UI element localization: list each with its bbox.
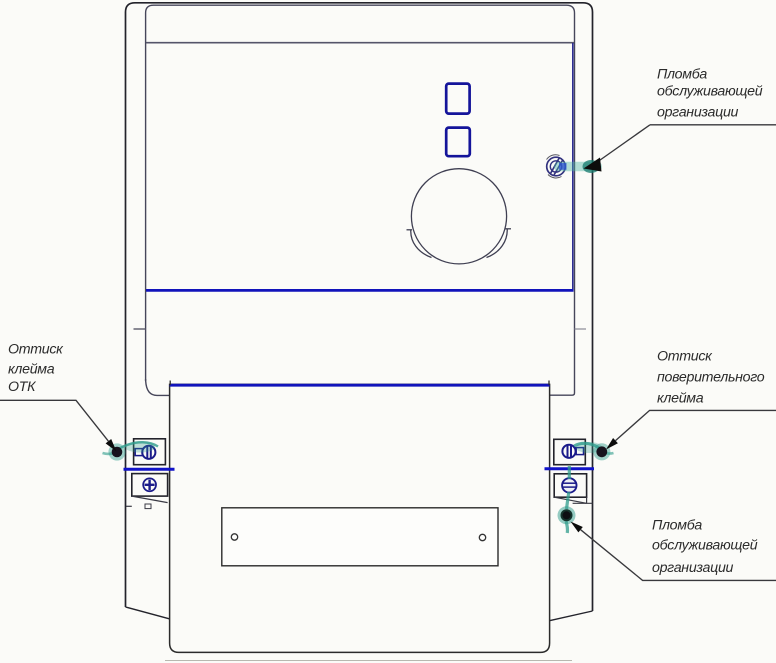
svg-text:Пломба: Пломба: [657, 67, 707, 83]
svg-text:поверительного: поверительного: [657, 370, 765, 386]
svg-text:Оттиск: Оттиск: [8, 342, 64, 358]
svg-text:организации: организации: [652, 560, 734, 576]
svg-text:Пломба: Пломба: [652, 518, 702, 534]
svg-text:ОТК: ОТК: [8, 379, 37, 395]
svg-text:организации: организации: [657, 105, 739, 121]
svg-text:Оттиск: Оттиск: [657, 349, 713, 365]
svg-text:обслуживающей: обслуживающей: [652, 538, 758, 554]
svg-text:клейма: клейма: [657, 391, 704, 407]
svg-text:обслуживающей: обслуживающей: [657, 84, 763, 100]
svg-text:клейма: клейма: [8, 362, 55, 378]
